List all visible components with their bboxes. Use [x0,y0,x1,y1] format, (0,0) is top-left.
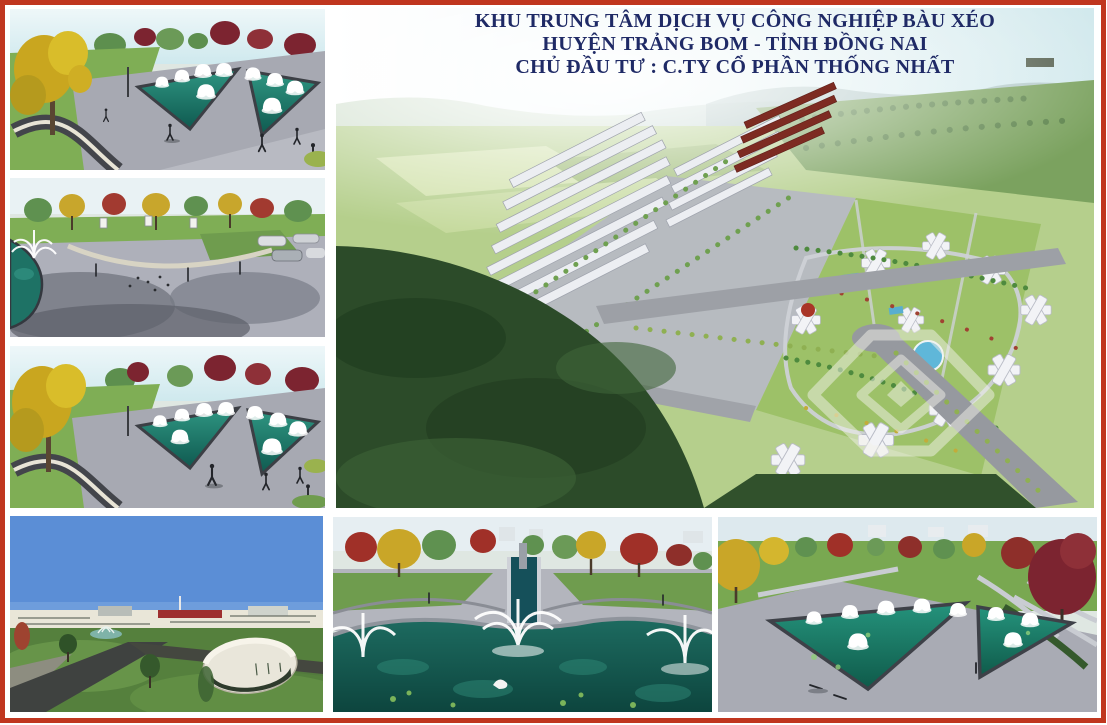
masterplan-aerial-render [336,8,1094,508]
sky [10,516,323,616]
park-render-2 [10,346,325,508]
pond-promenade-render [333,517,712,712]
panel-park-fountains-1 [10,9,325,170]
presentation-board: KHU TRUNG TÂM DỊCH VỤ CÔNG NGHIỆP BÀU XÉ… [0,0,1107,725]
small-fountain [90,629,122,639]
panel-triangular-ponds [718,517,1097,712]
project-title-line-2: HUYỆN TRẢNG BOM - TỈNH ĐỒNG NAI [380,33,1090,56]
panel-plaza-fountain [10,178,325,337]
project-title-line-1: KHU TRUNG TÂM DỊCH VỤ CÔNG NGHIỆP BÀU XÉ… [380,10,1090,33]
red-roof-pavilion [801,303,815,317]
industrial-entry-render [10,516,323,712]
project-title-block: KHU TRUNG TÂM DỊCH VỤ CÔNG NGHIỆP BÀU XÉ… [380,10,1090,79]
triangular-ponds-render [718,517,1097,712]
sculpture-pillar [519,543,527,569]
panel-pond-promenade [333,517,712,712]
project-title-line-3: CHỦ ĐẦU TƯ : C.TY CỔ PHẦN THỐNG NHẤT [380,56,1090,79]
panel-masterplan-aerial [336,8,1094,508]
park-render-1 [10,9,325,170]
panel-industrial-entry [10,516,323,712]
panel-park-fountains-2 [10,346,325,508]
plaza-render [10,178,325,337]
